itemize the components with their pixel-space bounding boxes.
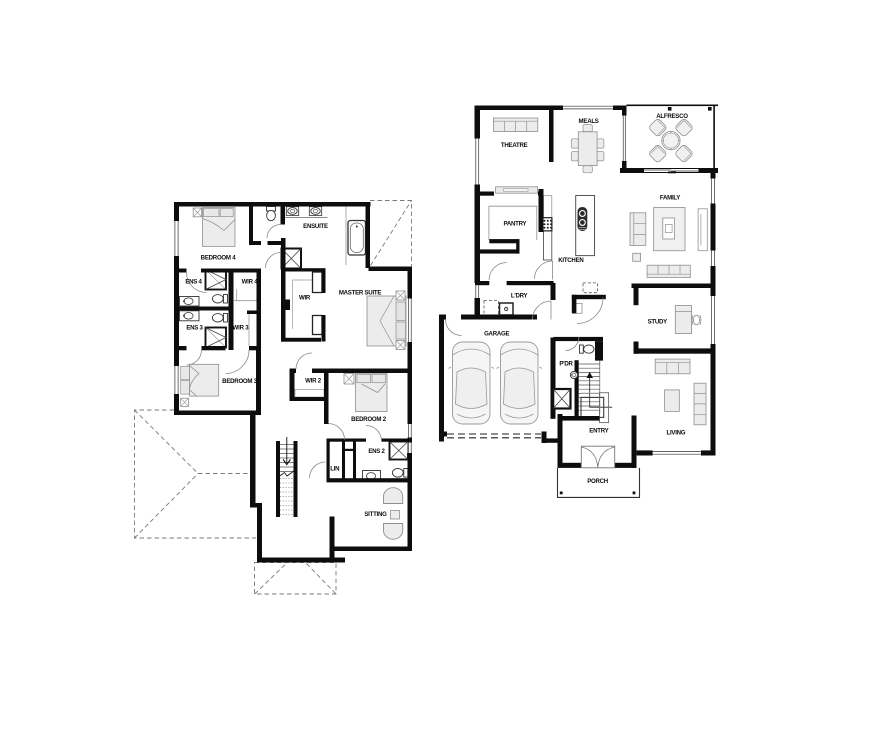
svg-text:BEDROOM 3: BEDROOM 3 — [222, 378, 258, 385]
svg-text:LIVING: LIVING — [666, 430, 685, 437]
svg-text:MASTER SUITE: MASTER SUITE — [339, 290, 382, 297]
svg-text:ALFRESCO: ALFRESCO — [656, 113, 688, 120]
svg-text:WIR: WIR — [299, 295, 311, 302]
svg-text:BEDROOM 2: BEDROOM 2 — [351, 416, 387, 423]
svg-text:MEALS: MEALS — [579, 118, 599, 125]
svg-text:PORCH: PORCH — [587, 478, 608, 485]
svg-text:ENSUITE: ENSUITE — [303, 223, 328, 230]
svg-text:WIR 4: WIR 4 — [242, 279, 259, 286]
svg-text:ENS 2: ENS 2 — [368, 448, 385, 455]
svg-text:PANTRY: PANTRY — [503, 221, 526, 228]
svg-text:KITCHEN: KITCHEN — [558, 257, 583, 264]
svg-text:BEDROOM 4: BEDROOM 4 — [201, 255, 237, 262]
svg-text:THEATRE: THEATRE — [501, 142, 528, 149]
svg-text:WIR 2: WIR 2 — [305, 377, 322, 384]
svg-text:LIN: LIN — [330, 466, 339, 473]
svg-text:P'DR: P'DR — [559, 361, 573, 368]
svg-text:WIR 3: WIR 3 — [233, 325, 250, 332]
svg-text:ENS 4: ENS 4 — [185, 279, 202, 286]
svg-text:ENS 3: ENS 3 — [186, 325, 203, 332]
svg-text:FAMILY: FAMILY — [660, 194, 680, 201]
svg-text:L'DRY: L'DRY — [511, 293, 528, 300]
svg-text:SITTING: SITTING — [364, 511, 387, 518]
svg-text:GARAGE: GARAGE — [484, 331, 509, 338]
svg-text:STUDY: STUDY — [648, 319, 668, 326]
svg-text:ENTRY: ENTRY — [589, 427, 608, 434]
